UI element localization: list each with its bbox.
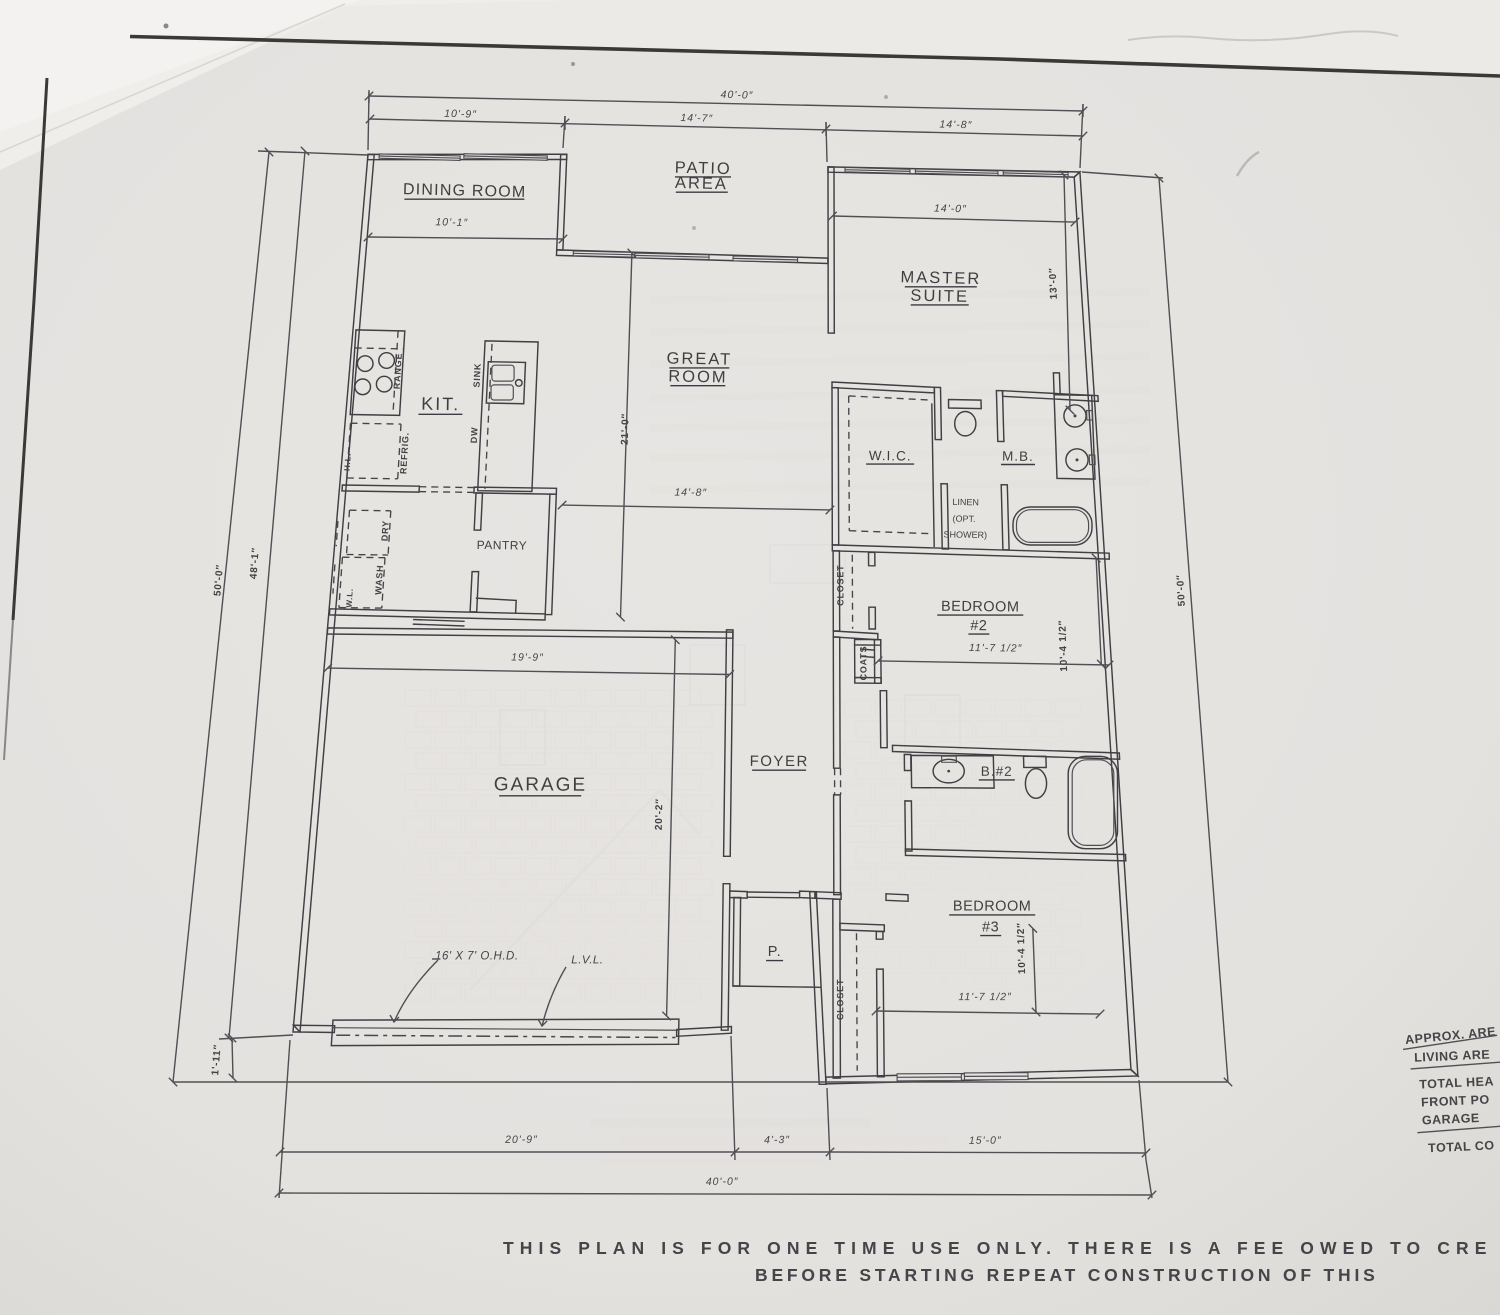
svg-text:40'-0″: 40'-0″	[720, 89, 753, 102]
svg-text:19'-9″: 19'-9″	[511, 651, 544, 663]
svg-text:CLOSET: CLOSET	[835, 979, 845, 1020]
svg-text:BEDROOM: BEDROOM	[941, 599, 1020, 616]
svg-text:BEDROOM: BEDROOM	[953, 899, 1031, 915]
svg-text:20'-2″: 20'-2″	[654, 798, 666, 830]
svg-text:KIT.: KIT.	[421, 394, 460, 415]
svg-text:11'-7 1/2″: 11'-7 1/2″	[969, 642, 1023, 655]
svg-text:FRONT PO: FRONT PO	[1421, 1093, 1490, 1110]
svg-text:M.B.: M.B.	[1002, 448, 1034, 463]
svg-text:#2: #2	[970, 618, 987, 634]
svg-text:11'-7 1/2″: 11'-7 1/2″	[958, 991, 1012, 1003]
svg-text:DRY: DRY	[380, 520, 391, 542]
svg-text:ROOM: ROOM	[668, 367, 728, 386]
svg-text:15'-0″: 15'-0″	[969, 1135, 1002, 1147]
svg-text:SHOWER): SHOWER)	[944, 529, 988, 540]
svg-text:14'-8″: 14'-8″	[674, 486, 707, 499]
svg-text:AREA: AREA	[675, 174, 728, 193]
svg-text:21'-0″: 21'-0″	[620, 413, 632, 445]
svg-text:L.V.L.: L.V.L.	[571, 954, 603, 966]
svg-text:PANTRY: PANTRY	[477, 538, 528, 553]
svg-text:14'-0″: 14'-0″	[934, 203, 967, 216]
svg-text:10'-4 1/2″: 10'-4 1/2″	[1057, 620, 1070, 672]
svg-text:14'-7″: 14'-7″	[680, 112, 713, 125]
svg-text:14'-8″: 14'-8″	[939, 118, 972, 131]
svg-text:GARAGE: GARAGE	[494, 774, 587, 795]
svg-text:SINK: SINK	[471, 363, 482, 388]
svg-text:COATS: COATS	[858, 646, 868, 681]
svg-text:20'-9″: 20'-9″	[504, 1134, 538, 1146]
svg-text:DINING ROOM: DINING ROOM	[403, 181, 527, 201]
svg-text:THIS PLAN IS FOR ONE TIME USE: THIS PLAN IS FOR ONE TIME USE ONLY. THER…	[503, 1238, 1492, 1258]
svg-text:10'-4 1/2″: 10'-4 1/2″	[1016, 922, 1028, 974]
svg-text:16' X 7' O.H.D.: 16' X 7' O.H.D.	[435, 950, 518, 962]
svg-text:#3: #3	[982, 919, 999, 935]
svg-text:TOTAL CO: TOTAL CO	[1428, 1138, 1495, 1155]
svg-text:FOYER: FOYER	[750, 753, 809, 770]
svg-text:BEFORE STARTING REPEAT CONSTRU: BEFORE STARTING REPEAT CONSTRUCTION OF T…	[755, 1265, 1379, 1285]
svg-text:10'-1″: 10'-1″	[435, 216, 468, 229]
svg-text:LINEN: LINEN	[952, 497, 979, 507]
svg-text:WASH: WASH	[373, 564, 385, 595]
svg-text:W.I.C.: W.I.C.	[869, 448, 912, 464]
svg-text:P.: P.	[768, 944, 782, 960]
svg-text:13'-0″: 13'-0″	[1048, 267, 1060, 299]
svg-text:GARAGE: GARAGE	[1422, 1111, 1480, 1128]
svg-text:(OPT.: (OPT.	[952, 514, 975, 524]
svg-text:B.#2: B.#2	[981, 764, 1013, 779]
svg-text:CLOSET: CLOSET	[835, 565, 845, 606]
svg-text:H.L.: H.L.	[343, 452, 353, 471]
svg-text:40'-0″: 40'-0″	[706, 1176, 739, 1188]
svg-text:10'-9″: 10'-9″	[444, 108, 477, 121]
svg-text:GREAT: GREAT	[666, 349, 732, 368]
svg-text:50'-0″: 50'-0″	[1175, 574, 1188, 607]
svg-text:DW: DW	[469, 426, 480, 443]
svg-text:W.L.: W.L.	[345, 588, 355, 608]
svg-text:SUITE: SUITE	[910, 287, 969, 306]
svg-text:4'-3″: 4'-3″	[764, 1134, 790, 1146]
svg-text:MASTER: MASTER	[900, 268, 981, 288]
